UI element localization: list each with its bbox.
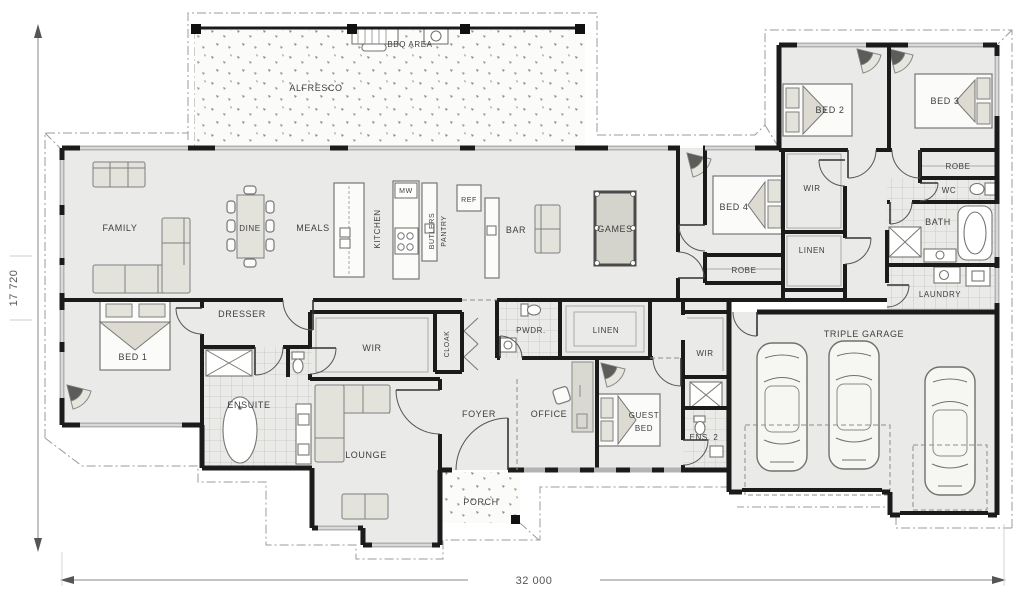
width-dimension: 32 000	[516, 575, 553, 587]
kitchen-island	[334, 183, 364, 277]
ens2-label: ENS. 2	[690, 433, 719, 442]
office-label: OFFICE	[531, 409, 568, 419]
games-label: GAMES	[597, 224, 633, 234]
bed1-label: BED 1	[118, 352, 147, 362]
dine-label: DINE	[239, 224, 261, 233]
height-dimension: 17 720	[8, 270, 20, 307]
alfresco-label: ALFRESCO	[289, 83, 342, 93]
guest-bed-label: GUEST	[629, 411, 660, 420]
bed4-label: BED 4	[719, 202, 748, 212]
garage-label: TRIPLE GARAGE	[824, 329, 904, 339]
foyer-label: FOYER	[462, 409, 496, 419]
arrow-down-icon	[34, 538, 42, 552]
wir-wing-label: WIR	[803, 184, 820, 193]
guest-bed-label2: BED	[635, 424, 653, 433]
post	[575, 24, 585, 34]
floorplan-page: BBQ AREA ALFRESCO FAMILY DINE MEALS KITC…	[0, 0, 1024, 600]
bath-label: BATH	[925, 217, 951, 227]
wir-master-label: WIR	[362, 343, 381, 353]
robe-bed4-label: ROBE	[731, 266, 756, 275]
car-icon	[925, 367, 975, 495]
porch-label: PORCH	[463, 497, 499, 507]
kitchen-label: KITCHEN	[373, 209, 382, 248]
post	[191, 24, 201, 34]
post	[460, 24, 470, 34]
linen-wing-label: LINEN	[799, 246, 826, 255]
ensuite-label: ENSUITE	[227, 400, 270, 410]
car-icon	[757, 343, 807, 471]
guest-bed-icon	[598, 394, 660, 446]
robe-bed3-label: ROBE	[945, 162, 970, 171]
butlers-pantry-label2: PANTRY	[441, 215, 448, 246]
family-label: FAMILY	[103, 223, 138, 233]
meals-label: MEALS	[296, 223, 330, 233]
linen-hall-label: LINEN	[593, 326, 620, 335]
cloak-label: CLOAK	[444, 331, 451, 358]
arrow-up-icon	[34, 24, 42, 38]
laundry-label: LAUNDRY	[919, 290, 961, 299]
basin-icon	[710, 446, 723, 457]
wir-guest-label: WIR	[696, 349, 713, 358]
toilet-icon	[292, 352, 304, 359]
dresser-label: DRESSER	[218, 309, 266, 319]
bar-label: BAR	[506, 225, 526, 235]
lounge-label: LOUNGE	[345, 450, 387, 460]
bed3-label: BED 3	[930, 96, 959, 106]
pwdr-label: PWDR.	[516, 326, 546, 335]
bbq-area-label: BBQ AREA	[387, 40, 432, 49]
toilet-icon	[985, 183, 995, 195]
bed2-label: BED 2	[815, 105, 844, 115]
post	[511, 515, 520, 524]
car-icon	[829, 341, 879, 469]
kitchen-bench	[393, 181, 419, 279]
fridge-label: REF	[461, 197, 477, 204]
wc-label: WC	[942, 186, 957, 195]
microwave-label: MW	[399, 188, 413, 195]
floorplan-drawing: BBQ AREA ALFRESCO FAMILY DINE MEALS KITC…	[0, 0, 1024, 600]
post	[347, 24, 357, 34]
butlers-pantry-label: BUTLERS	[429, 213, 436, 250]
